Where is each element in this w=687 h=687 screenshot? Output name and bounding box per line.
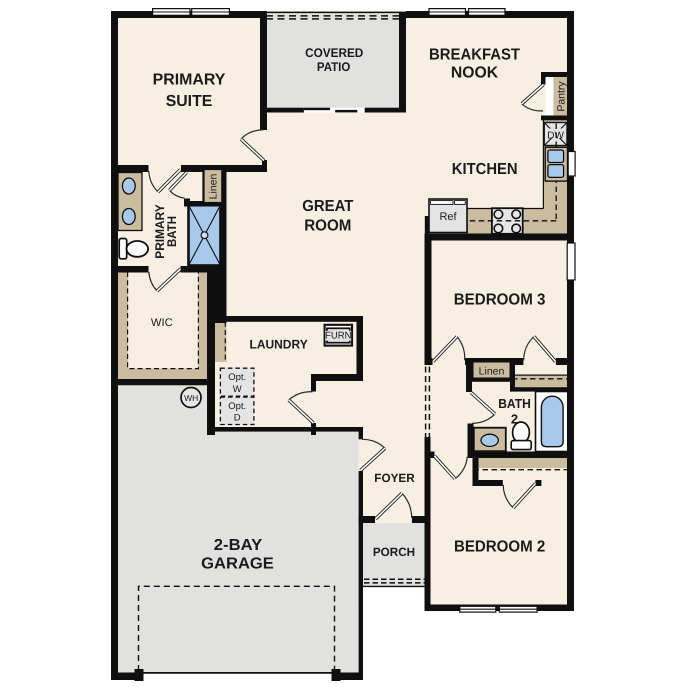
svg-text:BEDROOM 2: BEDROOM 2	[454, 539, 545, 556]
svg-text:Opt.: Opt.	[228, 401, 246, 412]
svg-text:WIC: WIC	[151, 317, 173, 329]
svg-text:2: 2	[511, 411, 518, 426]
svg-text:COVERED: COVERED	[305, 46, 363, 60]
svg-text:Linen: Linen	[479, 365, 505, 377]
svg-text:PATIO: PATIO	[317, 60, 351, 74]
svg-text:D: D	[234, 413, 241, 424]
svg-text:BREAKFAST: BREAKFAST	[429, 47, 520, 64]
svg-text:PORCH: PORCH	[373, 545, 415, 559]
svg-text:2-BAY: 2-BAY	[214, 537, 263, 554]
svg-text:Ref: Ref	[439, 211, 457, 223]
svg-text:Pantry: Pantry	[555, 81, 567, 112]
svg-text:ROOM: ROOM	[304, 218, 351, 235]
svg-text:SUITE: SUITE	[166, 93, 213, 110]
svg-text:GARAGE: GARAGE	[201, 555, 274, 572]
svg-text:BATH: BATH	[165, 216, 179, 247]
svg-text:W: W	[233, 384, 242, 395]
svg-text:BEDROOM 3: BEDROOM 3	[454, 292, 546, 309]
svg-text:BATH: BATH	[498, 396, 531, 411]
svg-text:Linen: Linen	[208, 174, 220, 200]
svg-text:PRIMARY: PRIMARY	[153, 71, 226, 88]
svg-text:FOYER: FOYER	[374, 471, 415, 485]
svg-text:LAUNDRY: LAUNDRY	[250, 338, 309, 352]
svg-text:FURN: FURN	[325, 331, 352, 342]
svg-text:WH: WH	[184, 393, 198, 403]
svg-text:KITCHEN: KITCHEN	[452, 161, 518, 178]
svg-text:DW: DW	[547, 130, 564, 141]
svg-text:Opt.: Opt.	[228, 372, 246, 383]
svg-text:GREAT: GREAT	[302, 198, 353, 215]
svg-text:NOOK: NOOK	[451, 64, 499, 81]
